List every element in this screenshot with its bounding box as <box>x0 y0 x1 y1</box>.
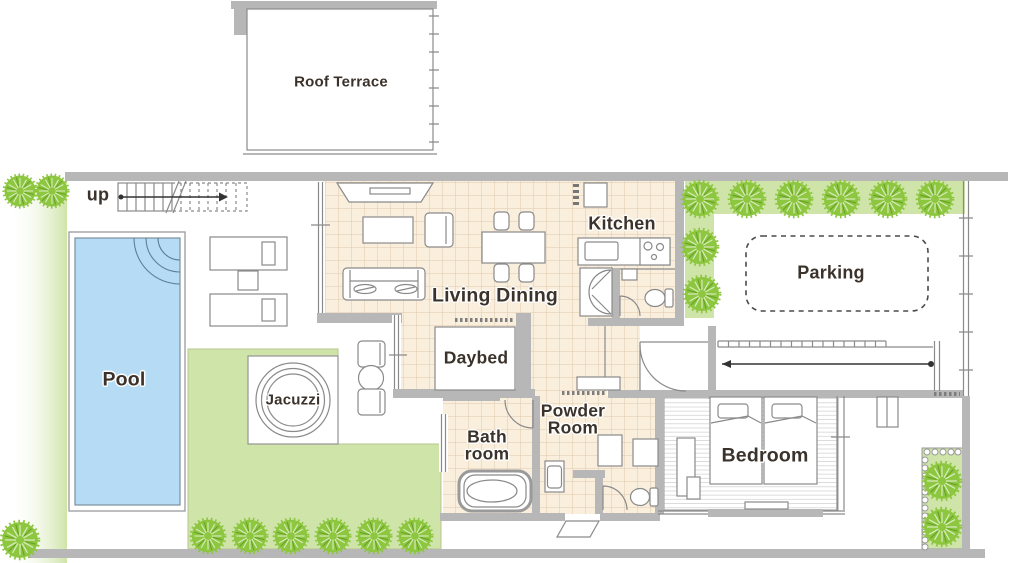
terrace-chair <box>358 341 385 367</box>
tree-icon <box>2 522 39 559</box>
tree-icon <box>917 181 952 216</box>
shoe-cabinet <box>577 377 620 390</box>
sofa <box>343 268 425 300</box>
stairs-up-arrow <box>219 193 228 202</box>
tree-icon <box>823 181 858 216</box>
side-table <box>238 271 258 290</box>
tree-icon <box>924 509 961 546</box>
label-kitchen: Kitchen <box>588 214 655 235</box>
bathtub <box>459 471 531 511</box>
label-daybed: Daybed <box>444 348 508 369</box>
tree-icon <box>316 519 350 553</box>
coffee-table <box>363 217 413 243</box>
entry-door-swing <box>640 345 686 391</box>
approach-arrow <box>722 360 731 368</box>
tree-icon <box>684 276 719 311</box>
tree-icon <box>233 519 267 553</box>
tree-icon <box>274 519 308 553</box>
label-bedroom: Bedroom <box>722 445 809 468</box>
dining-table <box>482 232 545 263</box>
tree-icon <box>36 175 68 207</box>
vanity <box>598 435 622 466</box>
boardwalk <box>718 341 933 347</box>
label-jacuzzi: Jacuzzi <box>266 392 321 409</box>
terrace-chair <box>358 389 385 415</box>
stairs-icon <box>118 181 247 213</box>
tree-icon <box>682 181 717 216</box>
dining-chair <box>494 264 509 282</box>
label-bathroom-line2: room <box>465 444 510 465</box>
dining-chair <box>494 212 509 230</box>
tree-icon <box>870 181 905 216</box>
tree-icon <box>682 229 717 264</box>
tree-icon <box>4 175 36 207</box>
tree-icon <box>924 463 961 500</box>
vanity <box>633 439 658 466</box>
west-planting-strip <box>8 181 67 563</box>
armchair <box>425 213 453 247</box>
tree-icon <box>776 181 811 216</box>
exterior-door-leaf <box>557 521 599 537</box>
stove <box>640 238 670 265</box>
dining-chair <box>519 212 534 230</box>
label-parking: Parking <box>797 263 864 284</box>
label-up: up <box>87 185 109 206</box>
label-pool: Pool <box>102 369 145 392</box>
label-powder-room-line2: Room <box>548 418 598 439</box>
toilet <box>631 489 650 506</box>
label-roof-terrace: Roof Terrace <box>294 74 388 91</box>
tree-icon <box>191 519 225 553</box>
tree-icon <box>357 519 391 553</box>
tree-icon <box>729 181 764 216</box>
floor-plan-canvas: Roof Terrace up Pool Jacuzzi Living Dini… <box>0 0 1010 563</box>
terrace-table <box>359 366 384 391</box>
tree-icon <box>398 519 432 553</box>
dining-chair <box>519 264 534 282</box>
toilet <box>645 290 665 307</box>
label-living-dining: Living Dining <box>432 285 558 308</box>
